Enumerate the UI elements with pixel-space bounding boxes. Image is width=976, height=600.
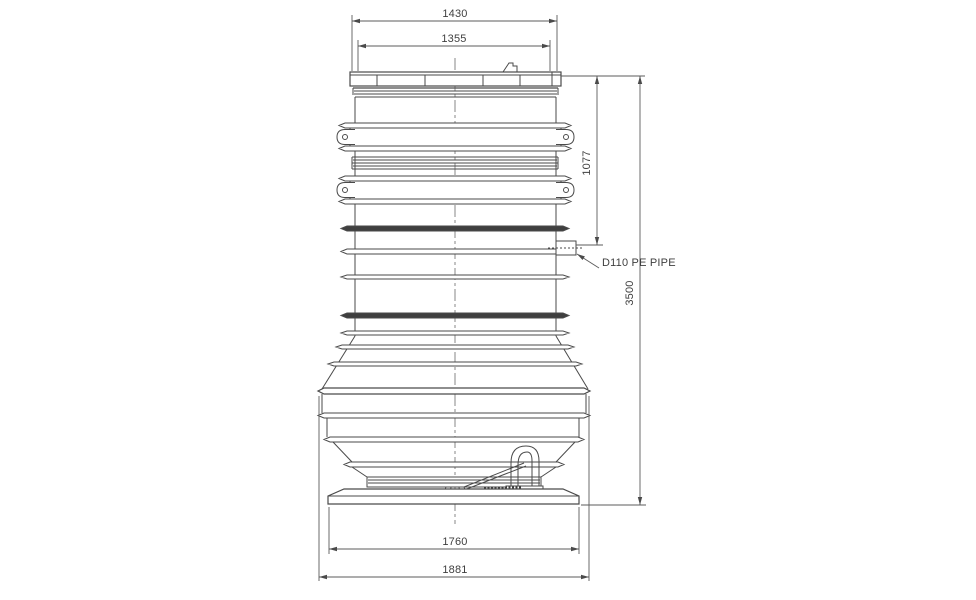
technical-drawing-canvas: 1430 1355 1077 3500 D110 PE PIPE 1760 18… bbox=[0, 0, 976, 600]
dim-max-body-width-label: 1881 bbox=[442, 564, 467, 576]
dim-lid-outer-width-label: 1430 bbox=[442, 8, 467, 20]
dim-inlet-height-label: 1077 bbox=[581, 150, 593, 175]
dim-overall-height-label: 3500 bbox=[624, 280, 636, 305]
rib-flanges bbox=[339, 123, 571, 335]
base-plate bbox=[328, 489, 579, 504]
outlet-pipe-label: D110 PE PIPE bbox=[602, 257, 676, 269]
lid-handle bbox=[503, 63, 517, 72]
dim-lid-inner-width-label: 1355 bbox=[441, 33, 466, 45]
lug-band-upper bbox=[337, 128, 574, 146]
lug-band-lower bbox=[337, 181, 574, 199]
bell-section bbox=[318, 336, 590, 487]
pump-station-elevation-drawing bbox=[0, 0, 976, 600]
dark-rib-band bbox=[341, 313, 569, 318]
dark-rib-band bbox=[341, 226, 569, 231]
lug-hole-icon bbox=[564, 135, 569, 140]
lug-hole-icon bbox=[343, 188, 348, 193]
lug-hole-icon bbox=[343, 135, 348, 140]
lug-hole-icon bbox=[564, 188, 569, 193]
dim-base-plate-width-label: 1760 bbox=[442, 536, 467, 548]
tank-lid bbox=[350, 63, 561, 97]
